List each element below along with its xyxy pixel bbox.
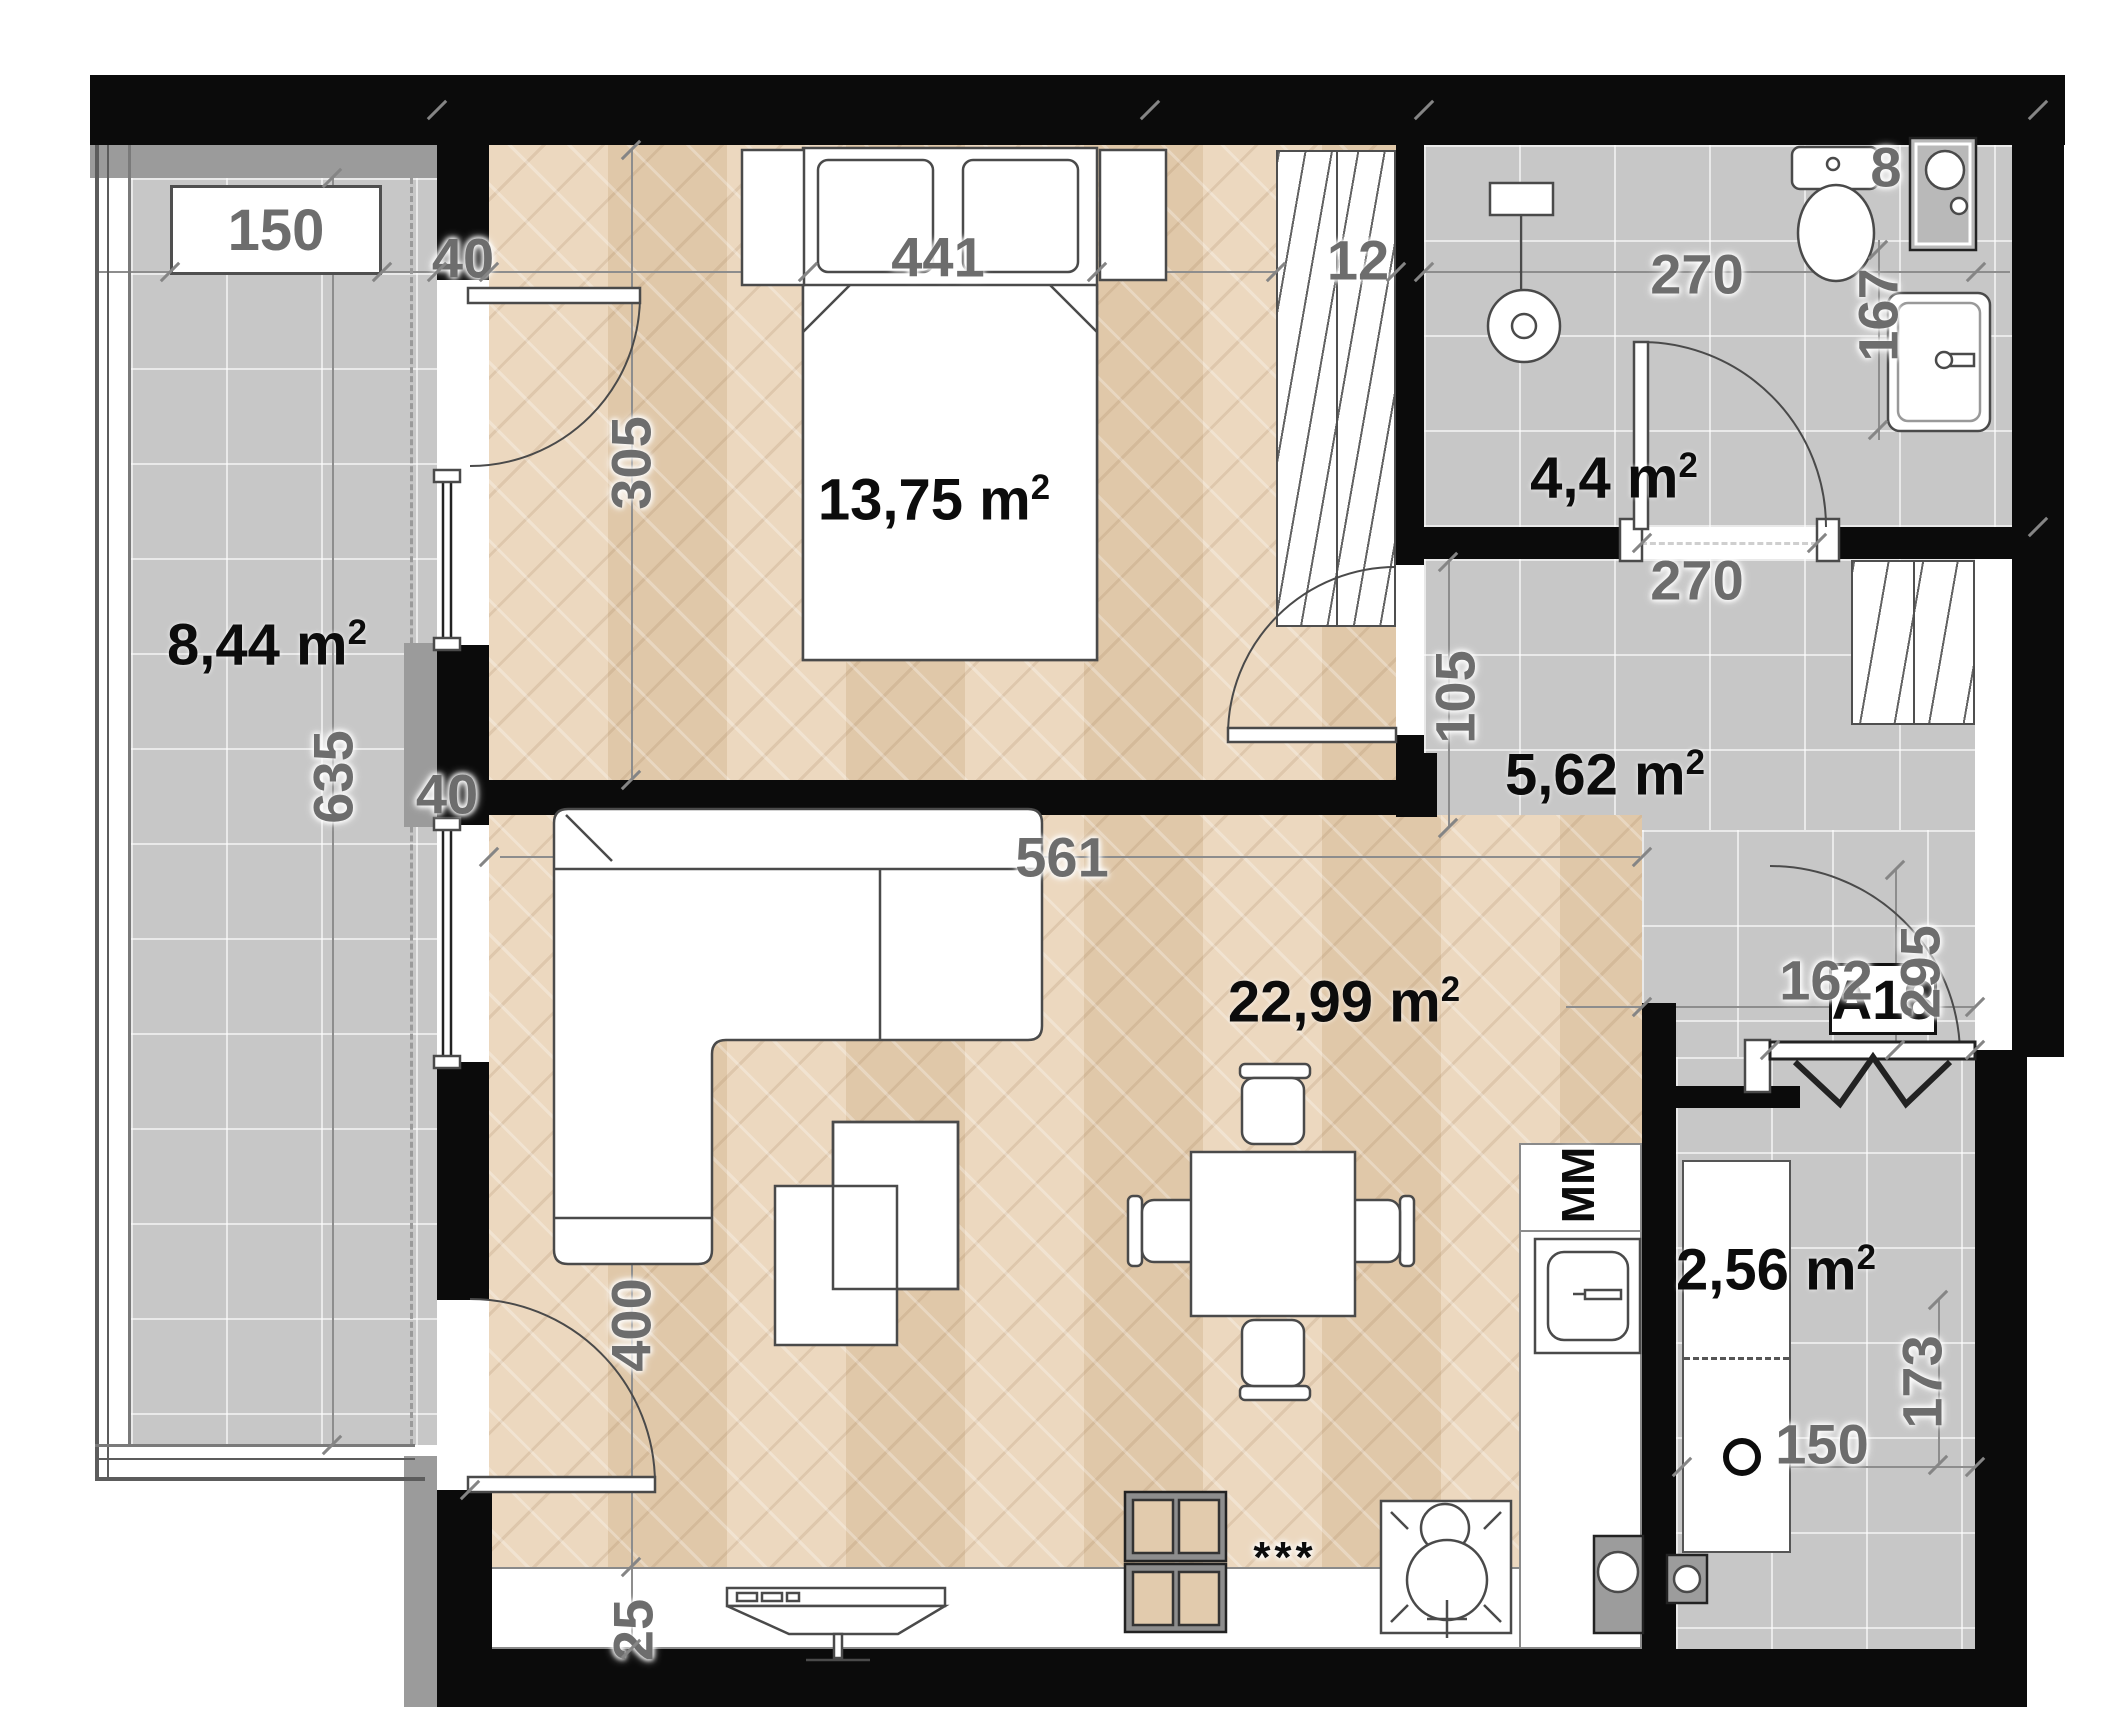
balcony-width-label: 150 — [228, 197, 325, 264]
chair-right — [1400, 1196, 1414, 1266]
chair-top — [1240, 1064, 1310, 1078]
duct-shaft — [1910, 138, 1976, 250]
dim-living-height-400: 400 — [599, 1278, 664, 1371]
dim-wardrobe-12: 12 — [1327, 228, 1389, 293]
shower-head — [1488, 183, 1560, 362]
dim-mid-40: 40 — [416, 762, 478, 827]
tv — [727, 1588, 945, 1660]
dim-hall-295: 295 — [1888, 925, 1953, 1018]
storage-area-label: 2,56 m2 — [1676, 1237, 1876, 1304]
dim-toilet-8: 8 — [1870, 135, 1901, 200]
balcony-area-label: 8,44 m2 — [167, 612, 367, 679]
dining-set — [1128, 1064, 1414, 1400]
small-appliance — [1667, 1555, 1707, 1603]
living-area-label: 22,99 m2 — [1228, 969, 1460, 1036]
dim-top-40: 40 — [432, 226, 494, 291]
dim-basin-167: 167 — [1846, 268, 1911, 361]
stove — [1125, 1492, 1226, 1632]
dim-bath-width-270: 270 — [1650, 242, 1743, 307]
fridge-label: MM — [1551, 1147, 1605, 1224]
coffee-tables — [775, 1122, 958, 1345]
chair-bottom — [1240, 1386, 1310, 1400]
chair-left — [1128, 1196, 1142, 1266]
hall-area-label: 5,62 m2 — [1505, 742, 1705, 809]
nightstand-right — [1100, 150, 1166, 280]
dim-bedroom-height-305: 305 — [599, 416, 664, 509]
dim-living-width-561: 561 — [1015, 825, 1108, 890]
bathroom-area-label: 4,4 m2 — [1530, 445, 1698, 512]
bedroom-window — [434, 470, 489, 650]
washing-machine — [1594, 1536, 1643, 1633]
dim-balcony-height-635: 635 — [301, 730, 366, 823]
bedroom-area-label: 13,75 m2 — [818, 467, 1050, 534]
balcony-width-box: 150 — [170, 185, 382, 275]
dim-bath-door-270: 270 — [1650, 548, 1743, 613]
living-window — [434, 818, 489, 1068]
dining-table — [1191, 1152, 1355, 1316]
cabinet-stars-label: *** — [1253, 1533, 1316, 1583]
dim-kitchen-25: 25 — [601, 1599, 666, 1661]
floor-plan: 150 A18 8,44 m2 13,75 m2 4,4 m2 5,62 m2 … — [0, 0, 2128, 1732]
toilet — [1792, 147, 1878, 281]
bedroom-hall-door — [1228, 567, 1396, 742]
kitchen-sink-unit — [1381, 1501, 1511, 1638]
dim-bedroom-width-441: 441 — [891, 225, 984, 290]
dim-storage-width-150: 150 — [1775, 1412, 1868, 1477]
dim-hall-105: 105 — [1423, 650, 1488, 743]
dim-storage-height-173: 173 — [1890, 1335, 1955, 1428]
dim-hall-162: 162 — [1779, 948, 1872, 1013]
counter-sink — [1535, 1239, 1640, 1353]
nightstand-left — [742, 150, 804, 285]
